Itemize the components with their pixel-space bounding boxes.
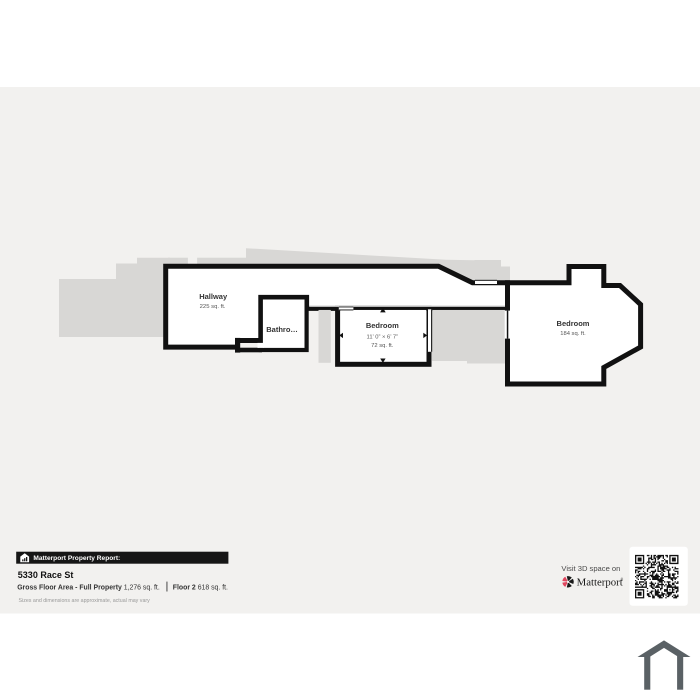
svg-text:5330 Race St: 5330 Race St	[18, 570, 74, 580]
svg-text:Bedroom: Bedroom	[366, 321, 399, 330]
svg-text:Sizes and dimensions are appro: Sizes and dimensions are approximate, ac…	[19, 598, 151, 604]
svg-text:Matterport Property Report:: Matterport Property Report:	[33, 555, 120, 562]
svg-text:Floor 2 618 sq. ft.: Floor 2 618 sq. ft.	[173, 584, 228, 591]
svg-text:Bedroom: Bedroom	[557, 319, 590, 328]
svg-text:Hallway: Hallway	[199, 292, 228, 301]
svg-text:Matterport: Matterport	[577, 577, 623, 589]
svg-text:Gross Floor Area - Full Proper: Gross Floor Area - Full Property 1,276 s…	[17, 584, 160, 591]
svg-text:72 sq. ft.: 72 sq. ft.	[371, 343, 394, 349]
svg-text:225 sq. ft.: 225 sq. ft.	[200, 304, 226, 310]
svg-text:Bathro…: Bathro…	[266, 325, 298, 334]
svg-text:184 sq. ft.: 184 sq. ft.	[560, 331, 586, 337]
svg-text:11’ 0” × 6’ 7”: 11’ 0” × 6’ 7”	[367, 335, 399, 341]
svg-text:Visit 3D space on: Visit 3D space on	[561, 564, 620, 573]
